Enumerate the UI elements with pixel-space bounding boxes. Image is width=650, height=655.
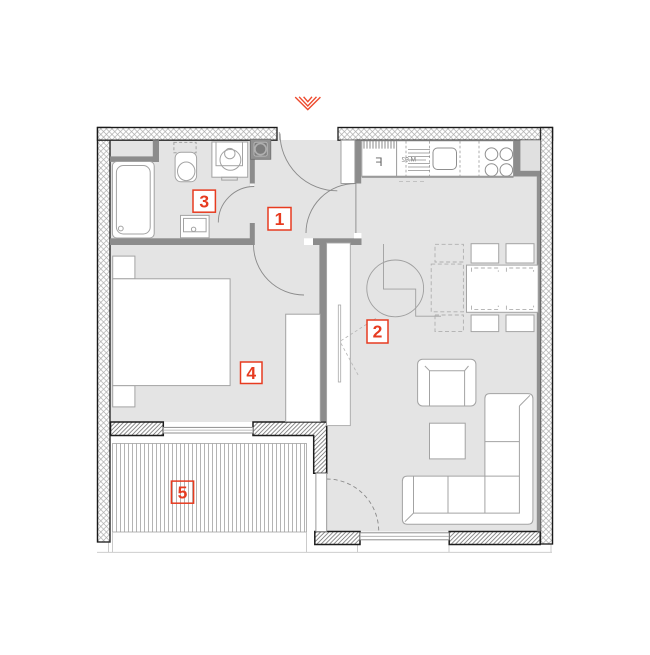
svg-text:1: 1	[275, 209, 285, 229]
svg-text:5: 5	[178, 483, 188, 503]
svg-text:F: F	[375, 157, 382, 169]
svg-text:3: 3	[199, 191, 209, 211]
svg-text:4: 4	[246, 363, 256, 383]
svg-text:M.92: M.92	[401, 157, 416, 164]
svg-text:2: 2	[373, 322, 383, 342]
